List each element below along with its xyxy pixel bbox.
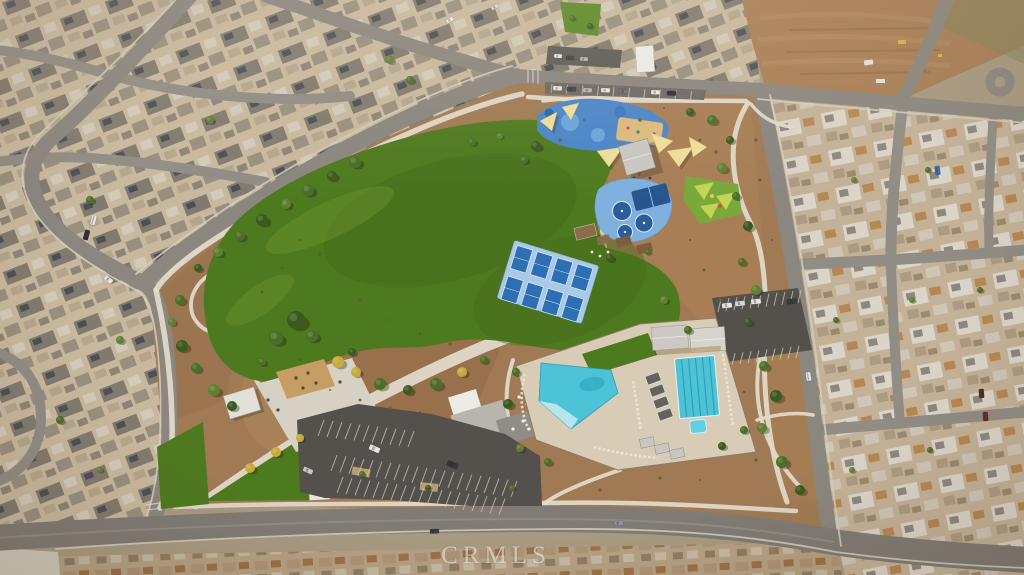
tree-highlight: [778, 458, 783, 463]
car: [787, 298, 797, 304]
car-windshield: [569, 88, 571, 91]
tree-highlight: [978, 288, 981, 291]
shrub: [448, 342, 452, 346]
tree-highlight: [685, 327, 689, 331]
shrub: [689, 239, 691, 241]
car: [614, 521, 623, 526]
shrub: [754, 138, 758, 142]
tree-highlight: [719, 443, 723, 447]
car: [554, 54, 562, 58]
small-white-building: [635, 45, 655, 72]
aerial-photo: CRMLS: [0, 0, 1024, 575]
tree-highlight: [517, 445, 521, 449]
shrub: [419, 411, 421, 413]
car-windshield: [556, 55, 558, 57]
car: [553, 86, 562, 91]
pocket-park-lawn: [560, 2, 601, 36]
tree-highlight: [192, 364, 197, 369]
shrub: [743, 391, 746, 394]
shrub: [359, 447, 361, 449]
car-windshield: [568, 57, 570, 59]
tree-highlight: [228, 402, 233, 407]
tree-highlight: [297, 435, 301, 439]
tree-highlight: [57, 417, 61, 421]
car-windshield: [616, 522, 618, 525]
tree-highlight: [510, 486, 513, 489]
car-windshield: [754, 300, 757, 304]
tree-highlight: [850, 468, 853, 471]
car-windshield: [790, 300, 793, 304]
car-windshield: [621, 90, 623, 93]
shrub: [419, 465, 422, 468]
pool-parking-lot[interactable]: [712, 288, 812, 362]
tree-highlight: [178, 342, 183, 347]
shrub: [759, 179, 762, 182]
tree-highlight: [407, 77, 411, 81]
tree-highlight: [661, 297, 665, 301]
car: [751, 298, 761, 304]
tree-highlight: [349, 349, 353, 353]
shrub: [583, 119, 585, 121]
tree-highlight: [744, 222, 749, 227]
tree-highlight: [98, 468, 101, 471]
shrub: [703, 269, 706, 272]
tree-highlight: [271, 333, 277, 339]
car: [651, 90, 660, 95]
car: [580, 57, 588, 61]
tree-highlight: [352, 368, 357, 373]
car-windshield: [555, 87, 557, 90]
tree-highlight: [570, 16, 573, 19]
tree-highlight: [718, 164, 723, 169]
tree-highlight: [351, 158, 356, 163]
tree-highlight: [426, 486, 429, 489]
tree-highlight: [504, 400, 509, 405]
shrub: [419, 333, 422, 336]
tree-highlight: [852, 178, 855, 181]
car: [667, 91, 676, 96]
shrub: [638, 118, 642, 122]
tree-highlight: [210, 386, 215, 391]
car-windshield: [585, 89, 587, 92]
tree-highlight: [687, 109, 691, 113]
shrub: [358, 298, 362, 302]
tree-highlight: [259, 359, 263, 363]
tree-highlight: [289, 313, 297, 321]
car-windshield: [582, 58, 584, 60]
tree-highlight: [282, 200, 287, 205]
tree-highlight: [588, 24, 591, 27]
tree-highlight: [328, 172, 333, 177]
tree-highlight: [176, 296, 181, 301]
tree-highlight: [745, 319, 749, 323]
tree-highlight: [481, 357, 485, 361]
tree-highlight: [334, 358, 339, 363]
tree-highlight: [926, 168, 929, 171]
car: [566, 56, 574, 60]
shrub: [663, 107, 665, 109]
car-windshield: [738, 302, 741, 306]
tree-highlight: [733, 193, 737, 197]
tree-highlight: [272, 448, 277, 453]
tree-highlight: [758, 424, 763, 429]
shrub: [659, 477, 662, 480]
corner-concrete: [0, 548, 60, 575]
tree-highlight: [117, 337, 121, 341]
tree-highlight: [708, 116, 713, 121]
shrub: [261, 291, 264, 294]
car: [979, 389, 985, 398]
tree-highlight: [246, 464, 251, 469]
tree-highlight: [458, 368, 463, 373]
shrub: [389, 319, 391, 321]
car: [583, 88, 592, 93]
car: [805, 372, 811, 382]
tree-highlight: [404, 386, 409, 391]
shrub: [299, 239, 301, 241]
tree-highlight: [214, 248, 219, 253]
tree-highlight: [360, 472, 363, 475]
car-windshield: [432, 530, 434, 533]
shrub: [359, 399, 362, 402]
tree-highlight: [607, 255, 611, 259]
tree-highlight: [741, 427, 745, 431]
tree-highlight: [928, 448, 931, 451]
tree-highlight: [513, 369, 517, 373]
tree-highlight: [236, 232, 241, 237]
tree-highlight: [796, 486, 801, 491]
shrub: [699, 139, 702, 142]
tree-highlight: [308, 332, 313, 337]
car-windshield: [603, 89, 605, 92]
tree-highlight: [498, 134, 501, 137]
aerial-photo-canvas: [0, 0, 1024, 575]
car: [430, 529, 439, 534]
tree-highlight: [304, 186, 309, 191]
shrub: [319, 253, 322, 256]
tree-highlight: [469, 139, 473, 143]
tree-highlight: [646, 250, 649, 253]
tree-highlight: [207, 117, 211, 121]
car: [619, 89, 628, 94]
tree-highlight: [752, 286, 757, 291]
tree-highlight: [521, 157, 525, 161]
car: [934, 166, 940, 176]
tree-highlight: [87, 197, 91, 201]
tree-highlight: [258, 216, 263, 221]
tree-highlight: [739, 259, 743, 263]
shrub: [714, 150, 718, 154]
car: [983, 412, 989, 421]
tree-highlight: [834, 318, 837, 321]
shrub: [299, 359, 302, 362]
tree-highlight: [432, 380, 437, 385]
shrub: [329, 389, 331, 391]
shrub: [598, 488, 602, 492]
car-windshield: [725, 304, 728, 308]
tree-highlight: [532, 142, 537, 147]
tree-highlight: [545, 459, 549, 463]
tree-highlight: [387, 57, 391, 61]
car-windshield: [669, 92, 671, 95]
car-windshield: [653, 91, 655, 94]
shrub: [699, 479, 701, 481]
shrub: [281, 267, 283, 269]
shrub: [735, 359, 737, 361]
shrub: [388, 406, 392, 410]
watermark: CRMLS: [438, 542, 554, 570]
tree-highlight: [376, 380, 381, 385]
shrub: [558, 138, 562, 142]
shrub: [771, 239, 773, 241]
tree-highlight: [772, 392, 777, 397]
tree-highlight: [727, 137, 731, 141]
shrub: [718, 298, 722, 302]
car: [567, 87, 576, 92]
car: [735, 300, 745, 306]
tree-highlight: [760, 362, 765, 367]
spa: [690, 419, 707, 433]
car: [722, 302, 732, 308]
lap-pool: [674, 355, 719, 418]
car: [601, 88, 610, 93]
tree-highlight: [195, 265, 199, 269]
tree-highlight: [910, 298, 913, 301]
shrub: [754, 458, 758, 462]
shrub: [338, 266, 342, 270]
tree-highlight: [169, 319, 173, 323]
